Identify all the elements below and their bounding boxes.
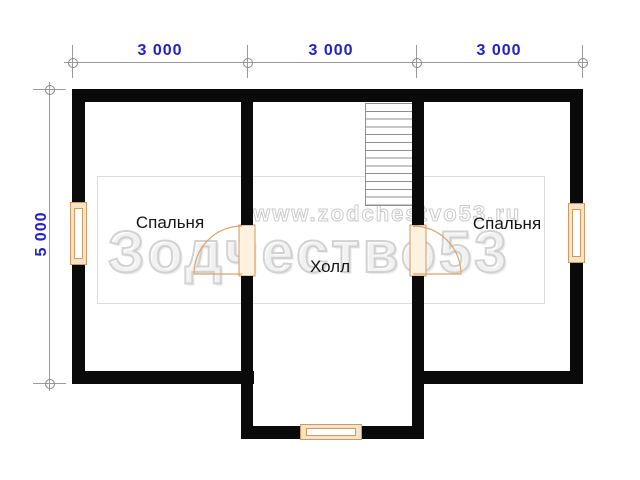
dimension-tick-circle xyxy=(578,58,588,68)
dimension-label-left: 5 000 xyxy=(33,194,51,274)
floor-plan: Зодчество53 www.zodchestvo53.ru 3 000 3 … xyxy=(0,0,640,480)
dimension-label-top-1: 3 000 xyxy=(115,42,205,60)
window-right xyxy=(568,203,585,263)
room-label-bedroom-left: Спальня xyxy=(110,213,230,233)
dimension-tick-circle xyxy=(68,58,78,68)
dimension-label-top-3: 3 000 xyxy=(454,42,544,60)
wall-hall-right-upper xyxy=(412,102,424,225)
wall-hall-right-lower xyxy=(412,276,424,438)
window-left xyxy=(70,202,87,265)
room-label-bedroom-right: Спальня xyxy=(447,214,567,234)
window-pane xyxy=(306,428,356,436)
wall-hall-left-lower xyxy=(241,276,253,438)
dimension-tick-circle xyxy=(45,85,55,95)
window-bottom xyxy=(300,424,362,440)
dimension-label-top-2: 3 000 xyxy=(286,42,376,60)
wall-bottom-right xyxy=(412,371,583,384)
dimension-tick-circle xyxy=(412,58,422,68)
dimension-line-top xyxy=(64,62,588,63)
dimension-tick-circle xyxy=(45,379,55,389)
window-pane xyxy=(572,209,581,257)
wall-hall-left-upper xyxy=(241,102,253,225)
dimension-tick-circle xyxy=(243,58,253,68)
window-pane xyxy=(74,208,83,259)
staircase xyxy=(365,103,414,206)
wall-bottom-left xyxy=(72,371,254,384)
room-label-hall: Холл xyxy=(280,257,380,277)
wall-top xyxy=(72,89,583,102)
